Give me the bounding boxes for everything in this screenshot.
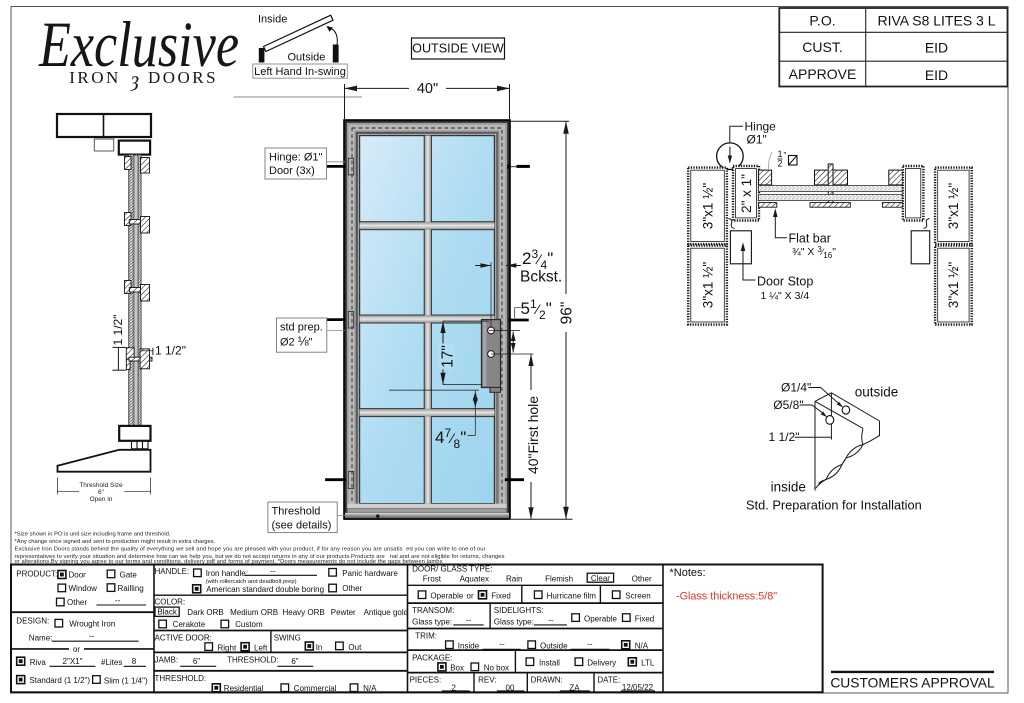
svg-text:Clear: Clear [591,574,610,583]
svg-text:DRAWN:: DRAWN: [531,676,563,685]
svg-text:P.O.: P.O. [809,13,835,29]
svg-text:EID: EID [925,67,948,83]
svg-text:2"X1": 2"X1" [63,657,83,666]
svg-text:TRANSOM:: TRANSOM: [412,606,454,615]
svg-text:CUSTOMERS APPROVAL: CUSTOMERS APPROVAL [830,676,995,691]
svg-text:Rain: Rain [506,575,522,584]
svg-text:Cerakote: Cerakote [173,620,206,629]
svg-text:Medium ORB: Medium ORB [230,608,278,617]
svg-text:1 1/2": 1 1/2" [155,344,186,358]
svg-text:Delivery: Delivery [587,659,616,668]
svg-text:Wrought Iron: Wrought Iron [69,619,115,628]
svg-text:--: -- [89,632,95,641]
svg-text:HANDLE:: HANDLE: [155,567,190,576]
svg-text:ACTIVE DOOR:: ACTIVE DOOR: [155,634,212,643]
svg-text:Inside: Inside [258,14,287,26]
svg-text:or: or [467,591,474,600]
svg-text:CUST.: CUST. [802,39,842,55]
svg-text:Std. Preparation for Installat: Std. Preparation for Installation [746,498,922,513]
svg-text:N/A: N/A [635,642,649,651]
svg-text:Fixed: Fixed [491,591,511,600]
svg-text:Window: Window [69,584,98,593]
svg-text:-Glass thickness:5/8": -Glass thickness:5/8" [676,591,777,603]
svg-text:Operable: Operable [430,591,463,600]
svg-text:2" x 1": 2" x 1" [739,174,754,213]
svg-text:std prep.: std prep. [280,322,323,334]
svg-text:6": 6" [98,489,105,496]
svg-text:Gate: Gate [120,570,138,579]
svg-text:1 ¼" X 3/4: 1 ¼" X 3/4 [761,290,810,302]
svg-text:3"x1 ½": 3"x1 ½" [946,183,961,230]
svg-text:IRON: IRON [69,68,121,87]
svg-text:In: In [316,643,323,652]
svg-text:Flat bar: Flat bar [789,232,831,246]
svg-text:Frost: Frost [423,575,442,584]
svg-text:Standard (1 1/2"): Standard (1 1/2") [29,676,90,685]
svg-text:Name:: Name: [29,634,53,643]
svg-text:N/A: N/A [363,684,377,693]
svg-text:Ø1": Ø1" [747,133,767,147]
svg-text:3"x1 ½": 3"x1 ½" [946,262,961,309]
svg-text:Ø1/4": Ø1/4" [781,381,811,395]
svg-text:3"x1 ½": 3"x1 ½" [701,262,716,309]
svg-text:Commercial: Commercial [294,684,337,693]
svg-text:*Any change once signed and se: *Any change once signed and sent to prod… [15,539,216,545]
svg-text:Slim (1 1/4"): Slim (1 1/4") [104,677,148,686]
svg-text:Left: Left [254,643,268,652]
svg-text:Ø2 ⅛": Ø2 ⅛" [280,334,313,349]
svg-text:Custom: Custom [235,620,263,629]
svg-text:": " [784,151,787,160]
svg-text:PRODUCT:: PRODUCT: [16,569,57,578]
svg-text:8: 8 [132,657,137,666]
svg-text:THRESHOLD:: THRESHOLD: [227,655,279,664]
svg-text:--: -- [115,596,121,605]
svg-text:40"First hole: 40"First hole [525,396,541,474]
svg-text:1: 1 [778,149,783,159]
svg-text:Ø5/8": Ø5/8" [773,398,803,412]
svg-text:DOOR/ GLASS TYPE:: DOOR/ GLASS TYPE: [412,565,492,574]
svg-text:DESIGN:: DESIGN: [16,617,49,626]
svg-text:REV:: REV: [478,676,496,685]
svg-text:Inside: Inside [458,642,480,651]
svg-text:inside: inside [771,480,806,495]
svg-text:17": 17" [440,345,457,368]
svg-text:*Notes:: *Notes: [670,567,706,579]
svg-text:Hinge: Ø1": Hinge: Ø1" [269,152,323,164]
svg-text:OUTSIDE VIEW: OUTSIDE VIEW [412,42,504,56]
svg-text:Install: Install [539,659,560,668]
svg-text:Operable: Operable [584,614,617,623]
svg-text:Riva: Riva [30,658,47,667]
svg-text:--: -- [466,616,472,625]
svg-text:Open in: Open in [90,496,113,503]
svg-text:American standard double borin: American standard double boring [206,585,324,594]
svg-text:Threshold Size: Threshold Size [79,482,123,489]
svg-text:Outside: Outside [540,642,568,651]
svg-text:1 1/2": 1 1/2" [111,315,125,346]
svg-text:2: 2 [778,159,783,169]
svg-text:SIDELIGHTS:: SIDELIGHTS: [494,606,544,615]
svg-text:Pewter: Pewter [331,608,356,617]
svg-text:Door (3x): Door (3x) [269,165,315,177]
svg-text:Right: Right [218,643,237,652]
svg-text:Other: Other [67,598,87,607]
svg-text:40": 40" [417,81,438,97]
svg-text:*Size shown in PO is unit size: *Size shown in PO is unit size including… [15,532,171,538]
svg-text:96": 96" [559,302,576,325]
svg-text:Dark ORB: Dark ORB [187,608,223,617]
svg-text:Bckst.: Bckst. [520,269,562,286]
svg-text:Heavy ORB: Heavy ORB [283,608,325,617]
svg-text:No box: No box [484,664,509,673]
svg-text:Aquatex: Aquatex [460,575,489,584]
svg-text:PACKAGE:: PACKAGE: [412,654,452,663]
svg-text:RIVA S8 LITES 3 L: RIVA S8 LITES 3 L [877,13,995,29]
svg-text:Fixed: Fixed [635,614,655,623]
svg-text:#Lites: #Lites [101,658,122,667]
svg-text:6": 6" [193,657,200,666]
svg-text:TRIM:: TRIM: [415,632,437,641]
svg-text:Antique gold: Antique gold [364,608,408,617]
svg-text:Flemish: Flemish [545,575,573,584]
svg-text:Exclusive Iron Doors stands be: Exclusive Iron Doors stands behind the q… [15,547,486,553]
svg-text:Glass type:: Glass type: [494,618,534,627]
svg-text:Other: Other [632,575,652,584]
svg-text:EID: EID [925,40,948,56]
svg-text:Iron handle:: Iron handle: [206,569,248,578]
svg-text:--: -- [499,640,505,649]
svg-text:LTL: LTL [641,659,655,668]
svg-text:outside: outside [855,385,899,400]
svg-text:(see details): (see details) [272,520,332,532]
svg-text:PIECES:: PIECES: [410,676,442,685]
svg-text:--: -- [270,566,276,575]
svg-text:Railling: Railling [118,584,144,593]
svg-text:Screen: Screen [625,591,650,600]
svg-text:Hinge: Hinge [745,120,777,134]
svg-text:or: or [73,645,80,654]
svg-text:COLOR:: COLOR: [155,598,186,607]
svg-text:DATE:: DATE: [597,676,620,685]
svg-text:SWING: SWING [274,634,301,643]
svg-text:Outside: Outside [288,52,326,64]
svg-text:Other: Other [342,584,362,593]
svg-text:Box: Box [450,664,464,673]
svg-text:Door Stop: Door Stop [757,275,813,289]
svg-text:3"x1 ½": 3"x1 ½" [701,183,716,230]
svg-text:THRESHOLD:: THRESHOLD: [155,674,207,683]
svg-text:APPROVE: APPROVE [789,66,857,82]
svg-text:Hurricane film: Hurricane film [547,591,597,600]
svg-text:Out: Out [348,643,362,652]
svg-text:--: -- [548,616,554,625]
svg-text:DOORS: DOORS [148,68,218,87]
svg-text:Residential: Residential [224,684,264,693]
svg-text:Left Hand In-swing: Left Hand In-swing [254,66,346,78]
svg-text:--: -- [587,640,593,649]
svg-text:ȝ: ȝ [130,67,139,91]
svg-text:Black: Black [157,608,178,617]
svg-text:6": 6" [291,657,298,666]
svg-text:Panic hardware: Panic hardware [342,569,398,578]
svg-text:Door: Door [69,570,87,579]
svg-text:Glass type:: Glass type: [412,618,452,627]
svg-text:Threshold: Threshold [272,506,321,518]
svg-text:JAMB:: JAMB: [155,655,179,664]
